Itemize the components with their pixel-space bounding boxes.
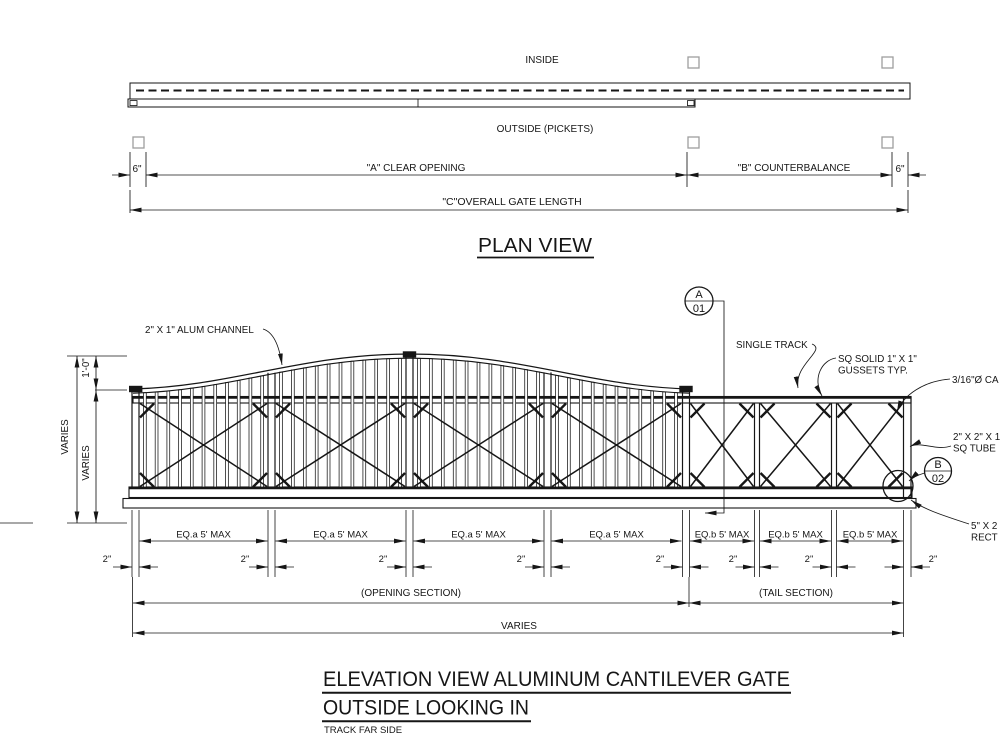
- single-track-label: SINGLE TRACK: [736, 340, 808, 351]
- elev-channel-leader: [263, 329, 282, 365]
- cable-leader: [897, 379, 950, 412]
- picket: [202, 387, 205, 487]
- gussets-label-2: GUSSETS TYP.: [838, 366, 908, 377]
- picket: [477, 362, 480, 487]
- drawing-sheet: INSIDE OUTSIDE (PICKETS) 6" "A" CLEAR OP…: [0, 0, 1000, 750]
- post-dim-1: 2": [103, 554, 112, 565]
- section-cut-a-line: [705, 301, 724, 513]
- picket: [339, 363, 342, 487]
- sq-tube-label-2: SQ TUBE: [953, 444, 996, 455]
- plan-post-inside-2: [882, 57, 893, 68]
- plan-panel-end-right: [688, 101, 695, 106]
- elevation-title-line1: ELEVATION VIEW ALUMINUM CANTILEVER GATE: [323, 667, 790, 691]
- plan-title: PLAN VIEW: [478, 235, 592, 257]
- plan-dim-b: "B" COUNTERBALANCE: [738, 163, 851, 174]
- elev-varies-outer: VARIES: [60, 419, 71, 455]
- rect-tube-leader: [911, 500, 969, 524]
- plan-outside-label: OUTSIDE (PICKETS): [497, 124, 594, 135]
- picket: [591, 382, 594, 487]
- plan-post-outside-2: [688, 137, 699, 148]
- picket: [351, 361, 354, 487]
- picket: [249, 378, 252, 487]
- plan-dim-6L: 6": [132, 164, 142, 175]
- picket: [261, 376, 264, 487]
- arch-channel-top: [133, 354, 689, 389]
- callout-a-letter: A: [695, 289, 703, 301]
- picket: [237, 380, 240, 487]
- gussets-leader: [818, 358, 836, 396]
- picket: [280, 372, 283, 487]
- plan-dim-c: "C"OVERALL GATE LENGTH: [442, 196, 581, 208]
- plan-post-outside-3: [882, 137, 893, 148]
- track-far-side-note: TRACK FAR SIDE: [324, 725, 402, 736]
- plan-panel-end-left: [130, 101, 137, 106]
- picket: [179, 390, 182, 487]
- elev-varies-inner: VARIES: [81, 445, 92, 481]
- picket: [639, 390, 642, 487]
- overall-varies-label: VARIES: [501, 621, 537, 632]
- plan-gate-panel: [128, 99, 695, 107]
- picket: [567, 378, 570, 487]
- sq-tube-label-1: 2" X 2" X 1: [953, 432, 1000, 443]
- picket: [155, 392, 158, 487]
- bay-dim-7: EQ.b 5' MAX: [843, 530, 898, 541]
- elevation-title-line2: OUTSIDE LOOKING IN: [323, 696, 529, 720]
- elev-arch-rise: 1'-0": [81, 358, 92, 378]
- tail-section-label: (TAIL SECTION): [759, 588, 833, 599]
- gussets-label-1: SQ SOLID 1" X 1": [838, 354, 917, 365]
- picket: [291, 370, 294, 487]
- post-dim-3: 2": [379, 554, 388, 565]
- bottom-track: [123, 499, 916, 509]
- plan-dim-a: "A" CLEAR OPENING: [367, 163, 466, 174]
- post-dim-2: 2": [241, 554, 250, 565]
- picket: [465, 361, 468, 487]
- picket: [603, 384, 606, 487]
- gate-drawing: INSIDE OUTSIDE (PICKETS) 6" "A" CLEAR OP…: [0, 0, 1000, 750]
- picket: [327, 364, 330, 487]
- picket: [651, 391, 654, 487]
- plan-post-outside-1: [133, 137, 144, 148]
- bay-dim-4: EQ.a 5' MAX: [589, 530, 644, 541]
- picket: [537, 372, 540, 487]
- callout-b-number: 02: [932, 473, 944, 485]
- rect-tube-label-1: 5" X 2: [971, 521, 997, 532]
- picket: [226, 383, 229, 487]
- callout-a-number: 01: [693, 303, 705, 315]
- post-dim-4: 2": [517, 554, 526, 565]
- cable-label: 3/16"Ø CA: [952, 375, 999, 386]
- picket: [525, 370, 528, 487]
- plan-view: INSIDE OUTSIDE (PICKETS) 6" "A" CLEAR OP…: [112, 55, 926, 258]
- plan-post-inside-1: [688, 57, 699, 68]
- picket: [663, 392, 666, 487]
- picket: [418, 358, 421, 487]
- picket: [453, 360, 456, 487]
- bay-dim-3: EQ.a 5' MAX: [451, 530, 506, 541]
- post-dim-8: 2": [929, 554, 938, 565]
- callout-b-letter: B: [934, 459, 941, 471]
- picket: [399, 358, 402, 487]
- sq-tube-leader: [910, 445, 951, 448]
- rect-tube-label-2: RECT: [971, 533, 998, 544]
- elevation-gate-structure: [123, 351, 916, 508]
- picket: [315, 366, 318, 487]
- plan-dim-6R: 6": [895, 164, 905, 175]
- picket: [387, 359, 390, 487]
- picket: [363, 360, 366, 487]
- elev-channel-label: 2" X 1" ALUM CHANNEL: [145, 325, 254, 336]
- bay-dim-1: EQ.a 5' MAX: [176, 530, 231, 541]
- elevation-annotations: VARIES 1'-0" VARIES 2" X 1" ALUM CHANNEL…: [0, 287, 1000, 736]
- post-dim-7: 2": [805, 554, 814, 565]
- post-dim-6: 2": [729, 554, 738, 565]
- picket: [501, 366, 504, 487]
- plan-inside-label: INSIDE: [525, 55, 559, 66]
- picket: [579, 380, 582, 487]
- bay-dim-6: EQ.b 5' MAX: [768, 530, 823, 541]
- bay-dim-5: EQ.b 5' MAX: [695, 530, 750, 541]
- post-dim-5: 2": [656, 554, 665, 565]
- picket: [489, 364, 492, 487]
- picket: [615, 386, 618, 487]
- picket: [167, 391, 170, 487]
- picket: [429, 359, 432, 487]
- picket: [556, 375, 559, 487]
- bay-dim-2: EQ.a 5' MAX: [313, 530, 368, 541]
- opening-section-label: (OPENING SECTION): [361, 588, 461, 599]
